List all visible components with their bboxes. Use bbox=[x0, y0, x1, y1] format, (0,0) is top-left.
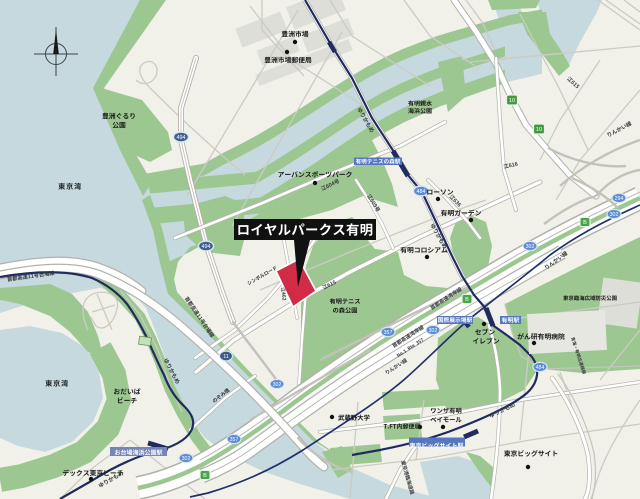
svg-text:B: B bbox=[203, 473, 207, 479]
svg-text:B: B bbox=[583, 220, 587, 226]
svg-text:357: 357 bbox=[384, 330, 393, 336]
svg-text:302: 302 bbox=[526, 244, 535, 250]
svg-text:294: 294 bbox=[615, 196, 624, 202]
svg-text:357: 357 bbox=[230, 437, 239, 443]
svg-text:302: 302 bbox=[182, 456, 191, 462]
svg-text:484: 484 bbox=[536, 365, 545, 371]
svg-text:10: 10 bbox=[536, 127, 542, 133]
svg-text:302: 302 bbox=[429, 328, 438, 334]
svg-text:302: 302 bbox=[273, 382, 282, 388]
svg-text:B: B bbox=[465, 297, 469, 303]
svg-text:494: 494 bbox=[177, 135, 186, 141]
svg-text:302: 302 bbox=[610, 212, 619, 218]
svg-text:484: 484 bbox=[417, 189, 426, 195]
svg-text:11: 11 bbox=[223, 354, 229, 360]
svg-text:10: 10 bbox=[509, 98, 515, 104]
svg-text:494: 494 bbox=[202, 244, 211, 250]
